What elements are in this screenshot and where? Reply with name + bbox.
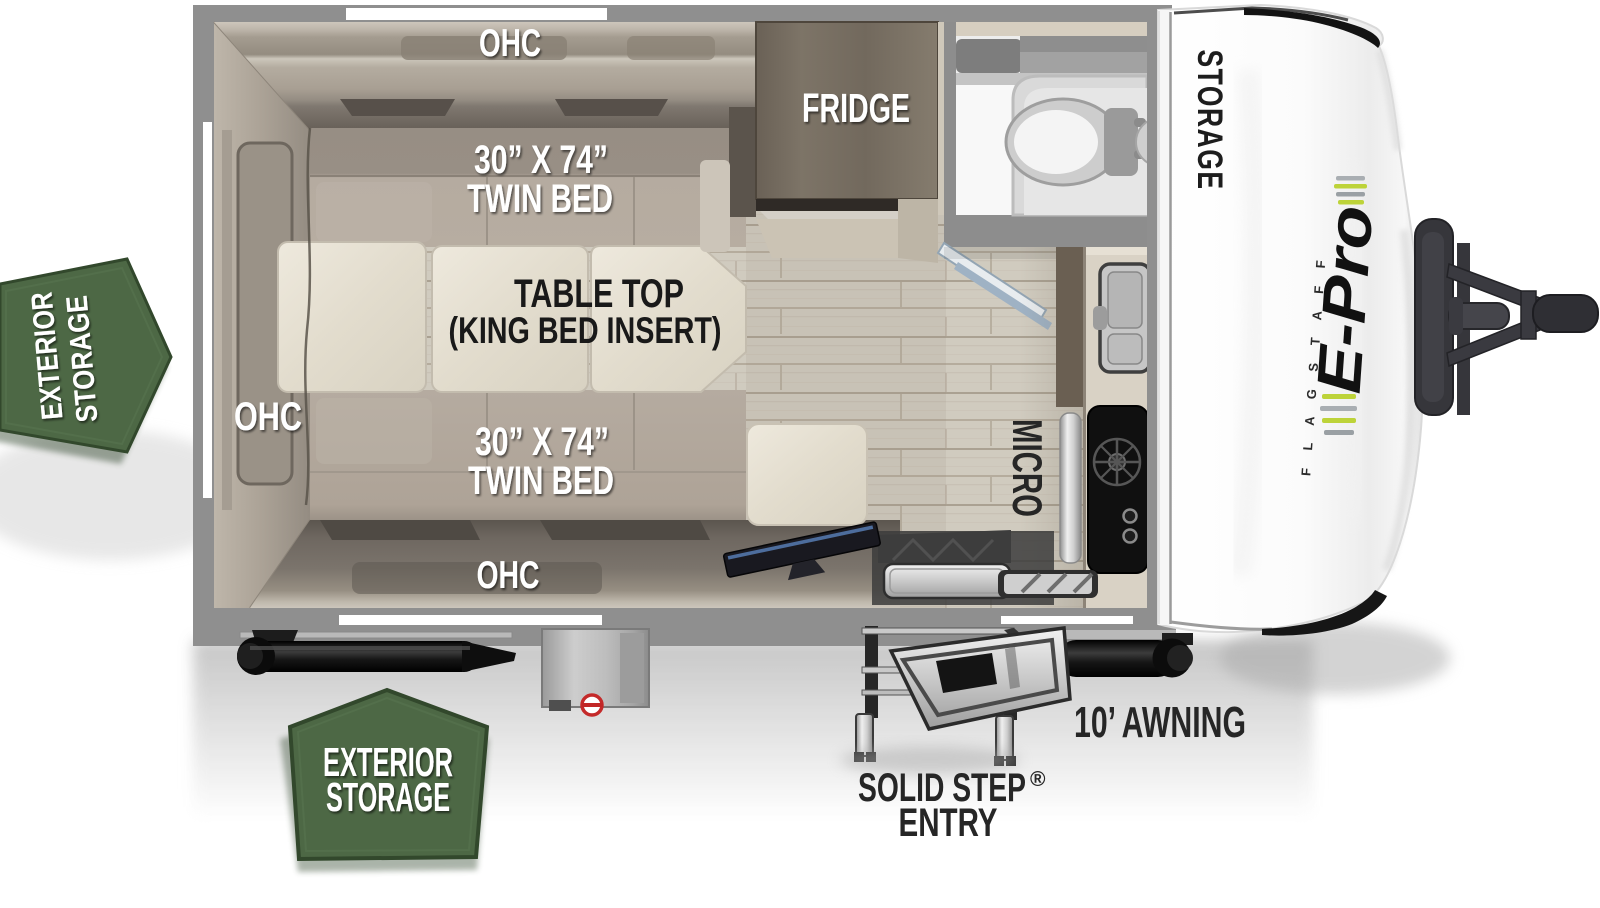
svg-text:OHC: OHC [477, 554, 540, 597]
svg-text:30” X 74”: 30” X 74” [475, 420, 609, 464]
svg-text:30” X 74”: 30” X 74” [474, 138, 608, 182]
svg-text:10’ AWNING: 10’ AWNING [1074, 698, 1246, 747]
svg-text:STORAGE: STORAGE [1190, 50, 1229, 191]
svg-text:OHC: OHC [479, 22, 541, 65]
svg-text:®: ® [1030, 768, 1046, 791]
svg-text:FRIDGE: FRIDGE [802, 85, 910, 131]
svg-text:TWIN BED: TWIN BED [467, 177, 613, 221]
svg-text:TWIN BED: TWIN BED [468, 459, 614, 503]
svg-text:ENTRY: ENTRY [899, 801, 998, 845]
svg-text:OHC: OHC [234, 395, 302, 439]
svg-text:STORAGE: STORAGE [326, 774, 450, 820]
svg-text:MICRO: MICRO [1004, 419, 1051, 517]
svg-text:(KING BED INSERT): (KING BED INSERT) [449, 310, 722, 351]
